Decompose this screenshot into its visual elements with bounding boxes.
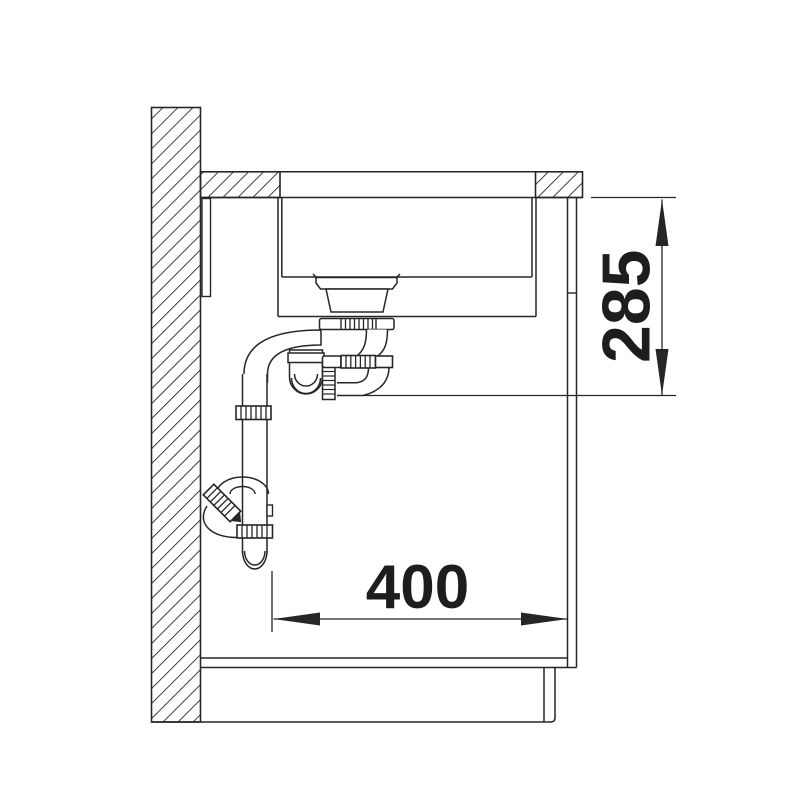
svg-text:285: 285 <box>589 250 665 363</box>
svg-text:400: 400 <box>366 553 469 622</box>
